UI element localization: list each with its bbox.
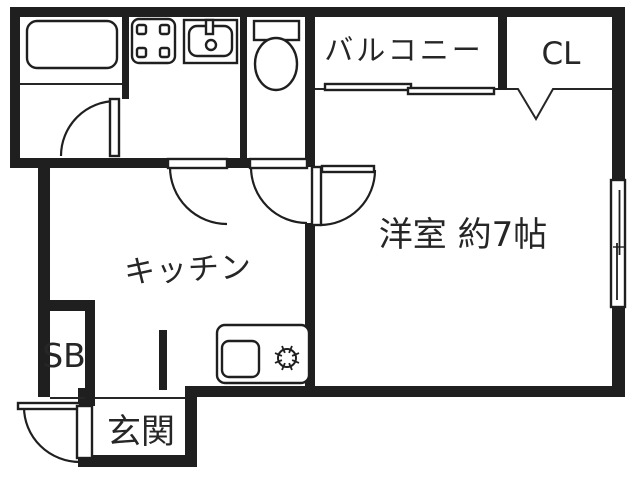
western-room-label: 洋室 約7帖 [379, 215, 547, 255]
bathtub [27, 21, 117, 68]
shoe-box-label: SB [42, 336, 86, 375]
toilet [254, 21, 299, 90]
kitchen-label: キッチン [123, 249, 252, 291]
room-sliding-window [611, 180, 625, 307]
washbasin [184, 20, 237, 63]
washroom-door [168, 159, 227, 224]
floor-plan: バルコニー CL 洋室 約7帖 キッチン SB 玄関 [0, 0, 635, 479]
room-door [312, 166, 375, 225]
floor-plan-page: バルコニー CL 洋室 約7帖 キッチン SB 玄関 [0, 0, 635, 479]
kitchen-sink [222, 341, 259, 377]
entrance-door [18, 403, 92, 462]
toilet-door [250, 159, 307, 223]
balcony-sliding-window [325, 84, 494, 94]
entrance-label: 玄関 [107, 412, 175, 452]
bathroom-door [61, 99, 119, 156]
closet-folding-door [507, 89, 612, 119]
kitchen-counter [217, 325, 309, 383]
closet-label: CL [542, 36, 582, 72]
balcony-label: バルコニー [324, 33, 483, 67]
washing-machine-pan [132, 19, 175, 63]
